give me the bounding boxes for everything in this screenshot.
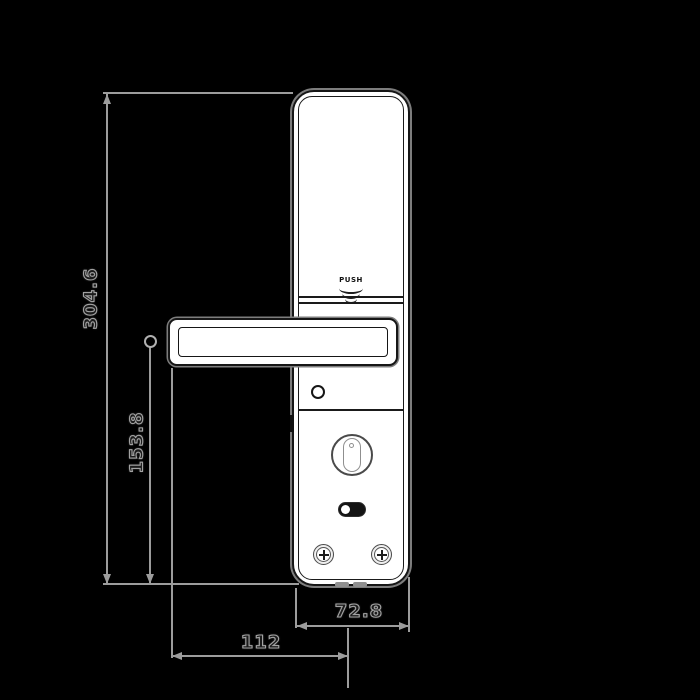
screw-cross-icon xyxy=(374,547,389,562)
extension-line-handle-tip xyxy=(171,368,173,658)
screw-left xyxy=(313,544,334,565)
extension-line-bottom xyxy=(103,583,299,585)
dim-handle-to-bottom-line xyxy=(149,347,151,584)
thumb-turn-lever xyxy=(343,438,361,472)
toggle-slot-dot xyxy=(341,505,350,514)
panel-divider xyxy=(299,296,403,298)
dim-handle-to-center-line xyxy=(172,655,348,657)
bottom-tab-left xyxy=(335,582,349,587)
extension-line-top xyxy=(103,92,293,94)
screw-cross-icon xyxy=(316,547,331,562)
toggle-slot xyxy=(338,502,366,517)
dim-body-width-line xyxy=(297,625,409,627)
dim-handle-to-center-label: 112 xyxy=(226,632,296,653)
thumb-turn-knob xyxy=(331,434,373,476)
arrow-left-icon xyxy=(297,622,307,630)
screw-right xyxy=(371,544,392,565)
panel-divider xyxy=(299,302,403,304)
handle-center-marker xyxy=(144,335,157,348)
panel-divider xyxy=(299,409,403,411)
dim-body-width-label: 72.8 xyxy=(324,601,394,622)
arrow-down-icon xyxy=(103,574,111,584)
door-handle-inner-line xyxy=(178,327,388,357)
arrow-right-icon xyxy=(399,622,409,630)
door-handle xyxy=(168,318,398,366)
dim-overall-height-label: 304.6 xyxy=(81,264,102,334)
bottom-tab-right xyxy=(353,582,367,587)
indicator-button xyxy=(311,385,325,399)
arrow-down-icon xyxy=(146,574,154,584)
arrow-up-icon xyxy=(103,94,111,104)
arrow-left-icon xyxy=(172,652,182,660)
dim-handle-to-bottom-label: 153.8 xyxy=(127,408,148,478)
arrow-right-icon xyxy=(338,652,348,660)
drawing-canvas: 304.6 153.8 72.8 112 PUSH xyxy=(0,0,700,700)
side-bolt-tick xyxy=(290,415,294,432)
lever-dot xyxy=(349,443,354,448)
dim-overall-height-line xyxy=(106,94,108,584)
